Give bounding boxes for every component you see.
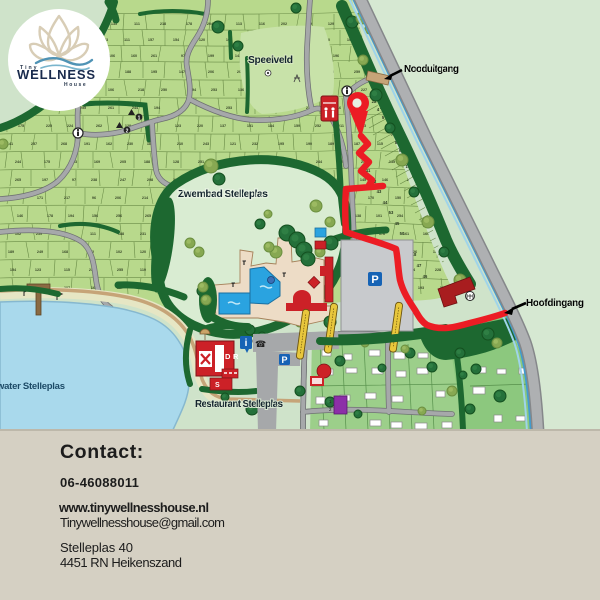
svg-text:D: D [225, 352, 231, 361]
svg-text:1: 1 [138, 116, 141, 122]
svg-text:253: 253 [211, 88, 217, 92]
svg-text:102: 102 [116, 250, 122, 254]
svg-text:169: 169 [94, 160, 100, 164]
svg-text:43: 43 [377, 189, 382, 194]
svg-text:194: 194 [154, 106, 161, 110]
svg-text:168: 168 [62, 250, 68, 254]
svg-text:146: 146 [382, 178, 388, 182]
svg-text:House: House [64, 82, 87, 88]
svg-text:123: 123 [35, 268, 41, 272]
svg-text:128: 128 [173, 160, 179, 164]
svg-text:106: 106 [108, 88, 114, 92]
svg-text:232: 232 [252, 142, 258, 146]
svg-text:96: 96 [92, 196, 96, 200]
svg-text:188: 188 [144, 160, 150, 164]
svg-text:193: 193 [418, 286, 424, 290]
svg-text:250: 250 [161, 88, 167, 92]
svg-text:256: 256 [116, 214, 122, 218]
svg-text:50: 50 [400, 231, 405, 236]
svg-text:189: 189 [8, 250, 14, 254]
svg-text:111: 111 [90, 232, 96, 236]
svg-text:195: 195 [151, 70, 157, 74]
svg-text:205: 205 [120, 160, 126, 164]
svg-text:water Stelleplas: water Stelleplas [0, 381, 65, 392]
svg-text:www.tinywellnesshouse.nl: www.tinywellnesshouse.nl [58, 500, 209, 515]
svg-text:i: i [245, 338, 248, 349]
svg-text:171: 171 [37, 196, 43, 200]
svg-text:P: P [281, 355, 287, 365]
svg-text:257: 257 [31, 142, 37, 146]
svg-text:187: 187 [354, 142, 360, 146]
svg-text:224: 224 [67, 124, 74, 128]
svg-text:WELLNESS: WELLNESS [17, 67, 95, 82]
svg-text:157: 157 [148, 38, 154, 42]
svg-text:208: 208 [147, 178, 153, 182]
svg-text:184: 184 [268, 124, 275, 128]
svg-text:202: 202 [281, 22, 287, 26]
svg-text:156: 156 [92, 214, 98, 218]
svg-text:247: 247 [120, 178, 126, 182]
svg-text:06-46088011: 06-46088011 [60, 475, 139, 490]
svg-text:4451 RN Heikenszand: 4451 RN Heikenszand [60, 555, 182, 570]
svg-text:Zwembad Stelleplas: Zwembad Stelleplas [178, 188, 268, 200]
svg-text:254: 254 [397, 214, 404, 218]
svg-text:253: 253 [226, 106, 232, 110]
svg-text:268: 268 [61, 142, 67, 146]
svg-text:160: 160 [131, 54, 137, 58]
svg-text:244: 244 [316, 160, 323, 164]
svg-text:Tinywellnesshouse@gmail.com: Tinywellnesshouse@gmail.com [60, 515, 225, 530]
svg-text:115: 115 [377, 142, 383, 146]
svg-text:101: 101 [376, 214, 382, 218]
svg-text:225: 225 [46, 124, 52, 128]
svg-text:206: 206 [115, 196, 121, 200]
svg-text:195: 195 [278, 142, 284, 146]
svg-text:265: 265 [145, 214, 151, 218]
svg-text:Stelleplas 40: Stelleplas 40 [60, 540, 133, 555]
svg-text:46: 46 [423, 274, 428, 279]
svg-text:47: 47 [417, 263, 422, 268]
svg-text:259: 259 [354, 70, 360, 74]
svg-text:137: 137 [220, 124, 226, 128]
svg-text:Speelveld: Speelveld [248, 54, 293, 66]
svg-text:175: 175 [44, 160, 50, 164]
svg-text:53: 53 [389, 210, 394, 215]
svg-text:210: 210 [177, 142, 183, 146]
svg-text:190: 190 [306, 142, 312, 146]
svg-text:115: 115 [64, 268, 70, 272]
svg-text:111: 111 [134, 22, 140, 26]
svg-text:230: 230 [127, 142, 133, 146]
svg-text:191: 191 [84, 142, 90, 146]
svg-text:123: 123 [175, 124, 181, 128]
svg-text:261: 261 [108, 106, 114, 110]
svg-text:194: 194 [68, 214, 75, 218]
svg-text:136: 136 [238, 88, 244, 92]
svg-text:178: 178 [186, 22, 192, 26]
svg-text:231: 231 [140, 232, 146, 236]
svg-text:147: 147 [179, 70, 185, 74]
svg-text:Restaurant Stelleplas: Restaurant Stelleplas [195, 399, 283, 410]
svg-text:243: 243 [203, 142, 209, 146]
svg-text:214: 214 [142, 196, 149, 200]
svg-text:162: 162 [106, 142, 112, 146]
svg-text:151: 151 [247, 124, 253, 128]
svg-text:262: 262 [96, 124, 102, 128]
svg-text:45: 45 [395, 221, 400, 226]
svg-text:146: 146 [17, 214, 23, 218]
svg-text:120: 120 [199, 38, 205, 42]
svg-text:220: 220 [197, 124, 203, 128]
svg-text:R: R [233, 352, 239, 361]
svg-text:218: 218 [138, 88, 144, 92]
svg-text:197: 197 [42, 178, 48, 182]
svg-text:113: 113 [236, 22, 242, 26]
svg-text:218: 218 [160, 22, 166, 26]
svg-text:199: 199 [208, 54, 214, 58]
svg-text:261: 261 [151, 54, 157, 58]
svg-text:227: 227 [361, 88, 367, 92]
svg-text:154: 154 [10, 268, 17, 272]
svg-text:159: 159 [294, 124, 300, 128]
svg-text:121: 121 [230, 142, 236, 146]
svg-text:44: 44 [383, 200, 388, 205]
svg-text:228: 228 [435, 268, 441, 272]
svg-text:S: S [215, 382, 220, 389]
svg-text:154: 154 [173, 38, 180, 42]
svg-text:244: 244 [15, 160, 22, 164]
svg-text:238: 238 [91, 178, 97, 182]
svg-text:Nooduitgang: Nooduitgang [404, 64, 459, 75]
svg-text:252: 252 [315, 124, 321, 128]
svg-text:116: 116 [259, 22, 265, 26]
svg-text:Hoofdingang: Hoofdingang [526, 298, 584, 309]
svg-text:97: 97 [72, 178, 76, 182]
svg-text:2: 2 [126, 129, 129, 135]
svg-text:255: 255 [117, 268, 123, 272]
svg-text:150: 150 [395, 196, 401, 200]
svg-text:129: 129 [328, 22, 334, 26]
svg-text:178: 178 [47, 214, 53, 218]
svg-text:251: 251 [198, 160, 204, 164]
svg-text:188: 188 [125, 70, 131, 74]
svg-text:217: 217 [64, 196, 70, 200]
svg-text:189: 189 [328, 142, 334, 146]
svg-text:Contact:: Contact: [60, 441, 144, 463]
svg-text:206: 206 [208, 70, 214, 74]
svg-text:249: 249 [37, 250, 43, 254]
svg-text:120: 120 [140, 250, 146, 254]
svg-text:☎: ☎ [255, 339, 266, 349]
svg-text:111: 111 [124, 38, 130, 42]
svg-text:P: P [371, 274, 378, 286]
svg-text:119: 119 [140, 268, 146, 272]
svg-text:196: 196 [333, 54, 339, 58]
svg-text:265: 265 [15, 178, 21, 182]
svg-text:170: 170 [368, 196, 374, 200]
